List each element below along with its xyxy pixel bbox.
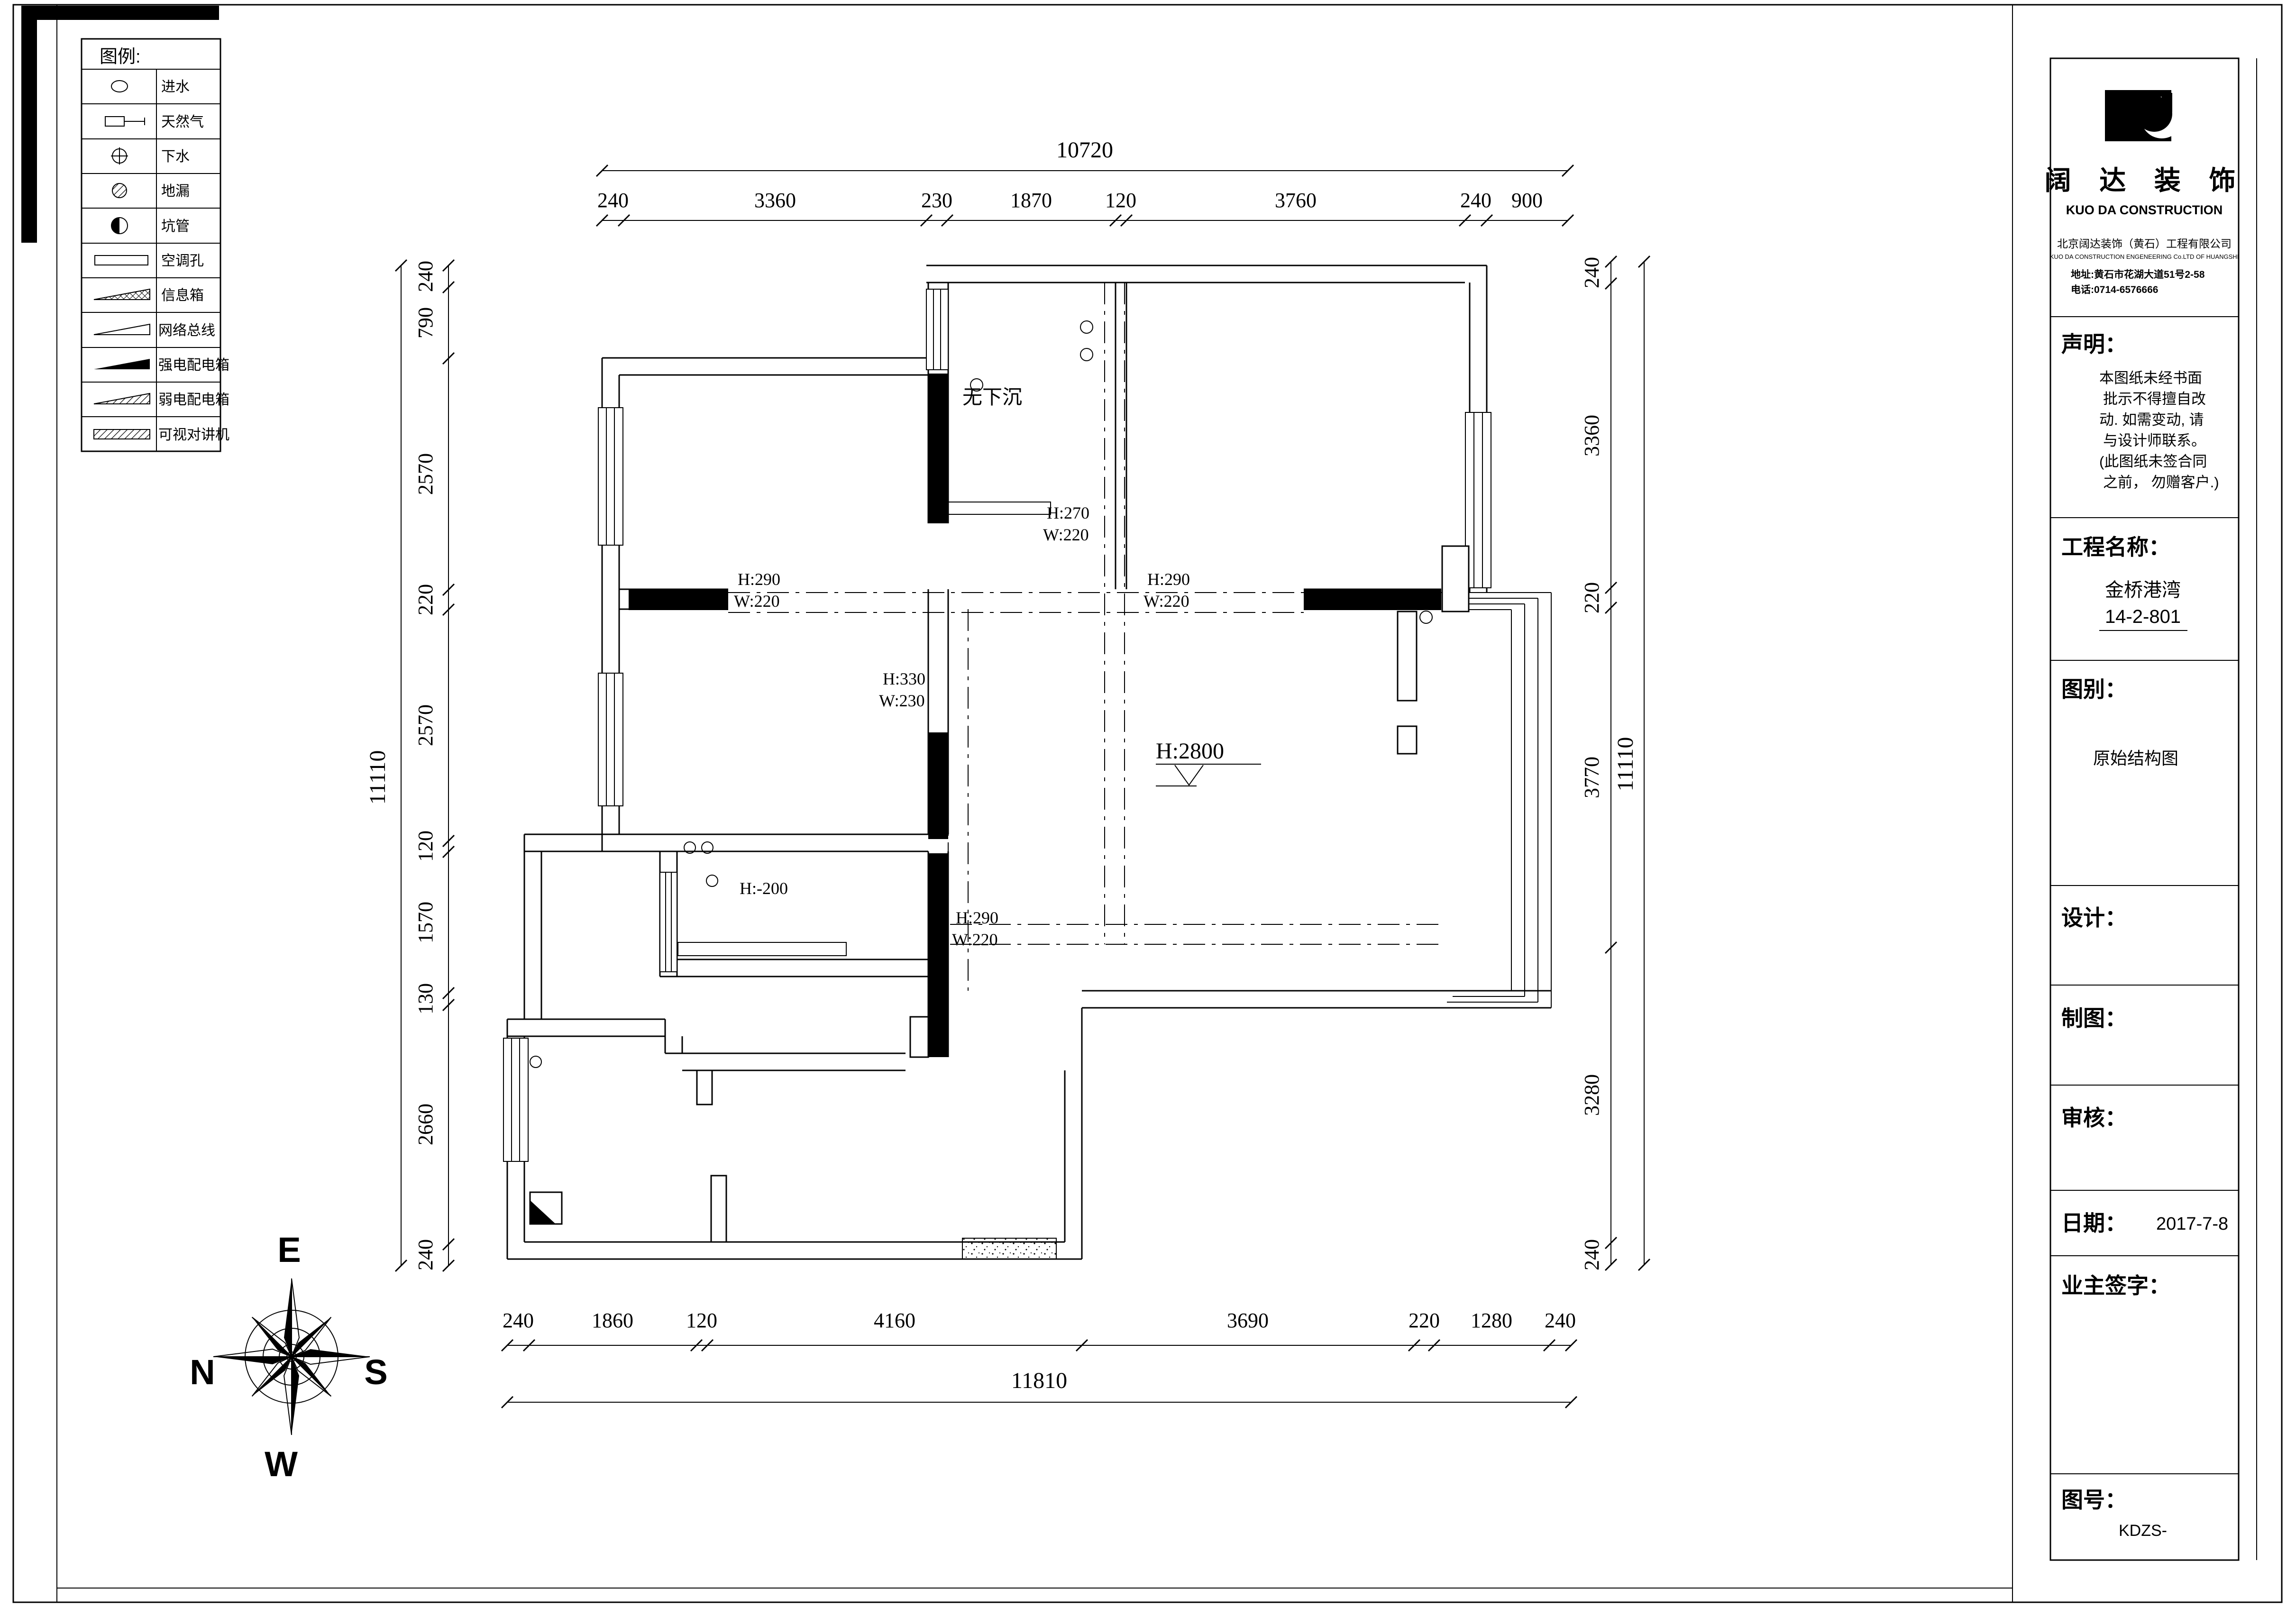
dim: 240 — [414, 261, 437, 292]
dim: 120 — [686, 1309, 717, 1332]
owner-signature-label: 业主签字： — [2061, 1273, 2170, 1298]
floor-drain-icon — [112, 183, 127, 198]
beam-label-h: H:270 — [1047, 503, 1089, 522]
statement-line: (此图纸未签合同 — [2099, 453, 2207, 470]
plan-labels: 无下沉 H:270 W:220 H:290 W:220 H:290 W:220 … — [734, 386, 1224, 949]
dim: 1870 — [1010, 189, 1052, 212]
legend-table: 图例: 进水 天然气 下水 地漏 坑管 空调孔 信息箱 网络总线 强电配电箱 弱… — [82, 39, 229, 451]
company-fullname-en: KUO DA CONSTRUCTION ENGENEERING Co.LTD O… — [2050, 253, 2239, 260]
ac-hole-icon — [95, 256, 148, 265]
beam-label-w: W:220 — [734, 592, 780, 611]
ceiling-height-label: H:2800 — [1156, 739, 1224, 764]
dim: 790 — [414, 307, 437, 338]
date-value: 2017-7-8 — [2156, 1214, 2228, 1234]
water-inlet-marker — [1420, 611, 1432, 623]
statement-title: 声明： — [2061, 332, 2127, 356]
dim: 2570 — [414, 704, 437, 746]
dim: 3760 — [1275, 189, 1317, 212]
dim: 220 — [414, 584, 437, 615]
dim: 3360 — [754, 189, 796, 212]
window-icon — [926, 289, 948, 370]
beam-label-w: W:220 — [952, 930, 998, 949]
beam-label-w: W:220 — [1043, 525, 1089, 544]
gas-icon — [105, 117, 145, 126]
dim: 3690 — [1227, 1309, 1269, 1332]
load-bearing-walls — [629, 374, 1441, 1057]
project-unit: 14-2-801 — [2105, 606, 2181, 627]
legend-item-label: 地漏 — [161, 183, 190, 199]
dim: 2570 — [414, 453, 437, 495]
statement-line: 之前， 勿赠客户.) — [2103, 474, 2219, 491]
legend-item-label: 网络总线 — [158, 323, 215, 338]
legend-title: 图例: — [100, 47, 141, 67]
dim: 240 — [1580, 257, 1603, 288]
window-icon — [660, 872, 677, 972]
plan-symbols — [530, 321, 1469, 1259]
sheet-frame — [13, 5, 2282, 1602]
beam-label-h: H:290 — [956, 908, 998, 927]
strong-power-box-symbol — [530, 1192, 562, 1224]
dim: 3770 — [1580, 757, 1603, 798]
compass-west-label: W — [265, 1444, 298, 1484]
corner-mark-horizontal — [24, 6, 219, 20]
dim: 900 — [1511, 189, 1543, 212]
water-inlet-marker — [530, 1056, 541, 1068]
legend-item-label: 可视对讲机 — [158, 427, 229, 443]
statement-line: 批示不得擅自改 — [2103, 391, 2206, 407]
dim: 230 — [921, 189, 952, 212]
sheet-type-value: 原始结构图 — [2093, 749, 2178, 768]
floor-drop-label: H:-200 — [740, 879, 788, 898]
legend-item-label: 坑管 — [161, 219, 190, 234]
company-logo-icon — [2105, 90, 2183, 141]
water-inlet-icon — [111, 81, 128, 92]
dim: 1280 — [1471, 1309, 1512, 1332]
dim: 3360 — [1580, 415, 1603, 457]
company-address: 地址:黄石市花湖大道51号2-58 — [2071, 269, 2205, 280]
corner-mark-vertical — [21, 6, 37, 243]
legend-item-label: 空调孔 — [161, 253, 204, 269]
dim: 120 — [1105, 189, 1136, 212]
network-bus-icon — [94, 324, 150, 335]
dim: 240 — [1460, 189, 1491, 212]
date-label: 日期： — [2061, 1211, 2127, 1235]
no-sink-note: 无下沉 — [962, 386, 1022, 408]
dimension-lines — [395, 165, 1650, 1408]
threshold-hatch — [962, 1238, 1056, 1259]
designer-label: 设计： — [2061, 905, 2127, 930]
windows — [503, 289, 1491, 1161]
window-icon — [503, 1038, 528, 1161]
compass-star — [213, 1278, 370, 1435]
beam-label-h: H:330 — [883, 669, 925, 688]
dim-total-left: 11110 — [365, 750, 390, 805]
dim: 3280 — [1580, 1074, 1603, 1116]
dim: 1570 — [414, 902, 437, 943]
info-box-icon — [94, 289, 150, 300]
drafter-label: 制图： — [2061, 1006, 2127, 1031]
legend-item-label: 天然气 — [161, 114, 204, 130]
compass-north-label: N — [190, 1352, 215, 1392]
level-symbol — [1156, 764, 1261, 786]
dim: 240 — [597, 189, 629, 212]
dim: 240 — [414, 1239, 437, 1270]
compass-east-label: E — [277, 1230, 301, 1269]
weak-power-box-icon — [94, 393, 150, 404]
centerlines — [728, 283, 1441, 991]
compass-rose: E N S W — [190, 1230, 387, 1484]
sheet-number-value: KDZS- — [2119, 1522, 2167, 1540]
dim: 240 — [503, 1309, 534, 1332]
dim: 220 — [1409, 1309, 1440, 1332]
statement-line: 本图纸未经书面 — [2099, 370, 2202, 386]
legend-item-label: 强电配电箱 — [158, 357, 229, 373]
video-intercom-icon — [94, 429, 150, 439]
water-inlet-marker — [706, 875, 718, 886]
beam-label-w: W:230 — [879, 691, 925, 710]
company-fullname-cn: 北京阔达装饰（黄石）工程有限公司 — [2057, 237, 2232, 250]
sewer-icon — [111, 147, 128, 164]
dim: 240 — [1580, 1239, 1603, 1270]
dim: 220 — [1580, 582, 1603, 613]
window-icon — [598, 673, 623, 806]
sheet-type-label: 图别： — [2061, 677, 2127, 702]
water-inlet-marker — [1080, 321, 1093, 333]
statement-line: 与设计师联系。 — [2103, 432, 2206, 449]
company-name-cn: 阔 达 装 饰 — [2045, 165, 2246, 195]
dimension-ticks — [395, 165, 1650, 1408]
beam-label-h: H:290 — [738, 570, 780, 589]
dim: 240 — [1545, 1309, 1576, 1332]
reviewer-label: 审核： — [2061, 1105, 2127, 1130]
beam-label-w: W:220 — [1143, 592, 1189, 611]
legend-item-label: 弱电配电箱 — [158, 392, 229, 408]
legend-item-label: 信息箱 — [161, 288, 204, 303]
legend-item-label: 下水 — [161, 149, 190, 164]
dim-total-right: 11110 — [1613, 737, 1638, 792]
company-name-en: KUO DA CONSTRUCTION — [2066, 203, 2223, 217]
floor-plan-walls — [507, 265, 1551, 1259]
beam-label-h: H:290 — [1147, 570, 1190, 589]
dim: 130 — [414, 983, 437, 1014]
window-icon — [598, 408, 623, 545]
strong-power-box-icon — [94, 359, 150, 369]
dim: 4160 — [874, 1309, 915, 1332]
company-phone: 电话:0714-6576666 — [2071, 284, 2158, 295]
dim: 2660 — [414, 1104, 437, 1145]
title-block: 阔 达 装 饰 KUO DA CONSTRUCTION 北京阔达装饰（黄石）工程… — [2045, 58, 2246, 1560]
dim: 120 — [414, 831, 437, 862]
dim: 1860 — [592, 1309, 633, 1332]
statement-line: 动. 如需变动, 请 — [2099, 411, 2204, 428]
dim-total-bottom: 11810 — [1011, 1368, 1067, 1393]
dim-total-top: 10720 — [1056, 137, 1113, 163]
project-label: 工程名称： — [2061, 535, 2170, 559]
drawing-sheet: 图例: 进水 天然气 下水 地漏 坑管 空调孔 信息箱 网络总线 强电配电箱 弱… — [0, 0, 2296, 1607]
legend-item-label: 进水 — [161, 79, 190, 95]
compass-south-label: S — [364, 1352, 387, 1392]
project-name: 金桥港湾 — [2105, 580, 2181, 601]
sheet-number-label: 图号： — [2061, 1488, 2127, 1512]
water-inlet-marker — [1080, 348, 1093, 361]
pit-pipe-icon — [111, 218, 128, 234]
